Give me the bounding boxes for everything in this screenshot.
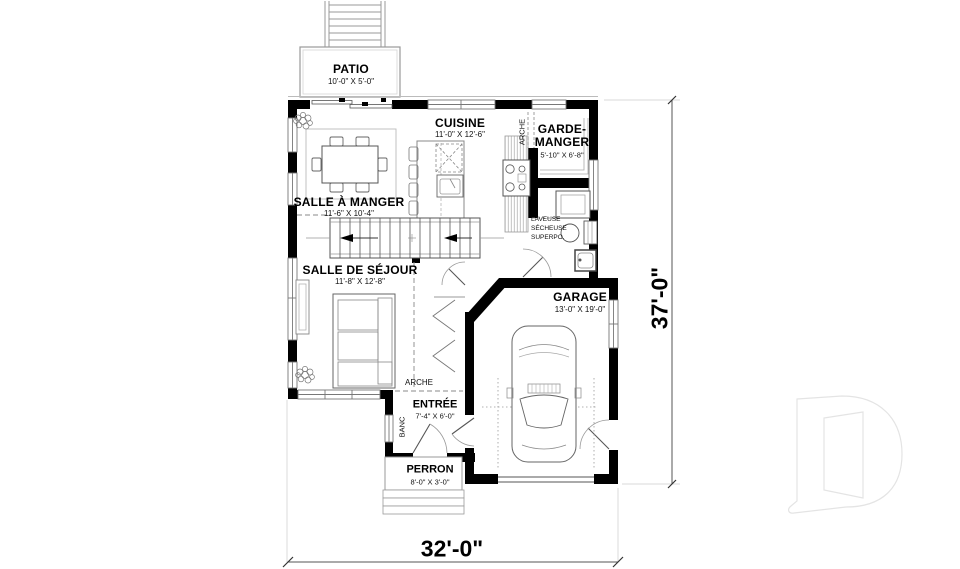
window-seat: [296, 280, 309, 334]
arche-annotation-lower: ARCHE: [405, 379, 433, 387]
overall-width-dimension: 32'-0": [421, 538, 483, 561]
patio-dims: 10'-0" X 5'-0": [328, 78, 374, 86]
garage-door: [498, 477, 594, 482]
entree-label: ENTRÉE: [413, 400, 458, 411]
sofa: [333, 294, 395, 388]
cuisine-dims: 11'-0" X 12'-6": [435, 131, 485, 139]
garage-label: GARAGE: [553, 291, 607, 303]
garde-manger-dims: 5'-10" X 6'-8": [540, 151, 583, 159]
dining-table: [306, 129, 396, 199]
salle-a-manger-dims: 11'-6" X 10'-4": [324, 210, 374, 218]
laundry-annotation-line3: SUPERPO.: [531, 235, 565, 242]
banc-annotation: BANC: [398, 417, 406, 438]
perron-label: PERRON: [406, 465, 453, 476]
closet-bifold-doors: [433, 297, 465, 372]
floor-plan-drawing: [0, 0, 960, 569]
entree-dims: 7'-4" X 6'-0": [415, 412, 454, 420]
plant-icon: [296, 366, 315, 383]
laundry-annotation-line1: LAVEUSE: [531, 217, 561, 224]
cuisine-label: CUISINE: [435, 117, 485, 129]
stacked-washer-dryer: [532, 191, 590, 218]
laundry-annotation-line2: SÉCHEUSE: [531, 226, 567, 233]
sink: [437, 175, 463, 197]
salle-de-sejour-label: SALLE DE SÉJOUR: [302, 264, 417, 276]
perron-dims: 8'-0" X 3'-0": [410, 478, 449, 486]
arche-annotation-upper: ARCHE: [518, 119, 526, 145]
floor-plan: PATIO 10'-0" X 5'-0" CUISINE 11'-0" X 12…: [0, 0, 960, 569]
patio-label: PATIO: [333, 63, 369, 75]
garage-dims: 13'-0" X 19'-0": [555, 306, 606, 314]
dryer-unit: [584, 221, 597, 244]
garde-manger-label-line1: GARDE-: [538, 123, 587, 135]
salle-a-manger-label: SALLE À MANGER: [294, 196, 405, 208]
salle-de-sejour-dims: 11'-8" X 12'-8": [335, 278, 385, 286]
patio-sliding-door: [312, 98, 392, 108]
overall-height-dimension: 37'-0": [649, 267, 672, 329]
patio-stairs: [325, 1, 385, 47]
stove: [503, 160, 530, 196]
garde-manger-label-line2: MANGER: [535, 136, 590, 148]
staircase: [306, 218, 504, 258]
laundry-tub: [575, 250, 596, 271]
logo-watermark: [789, 396, 902, 513]
car: [507, 326, 581, 462]
